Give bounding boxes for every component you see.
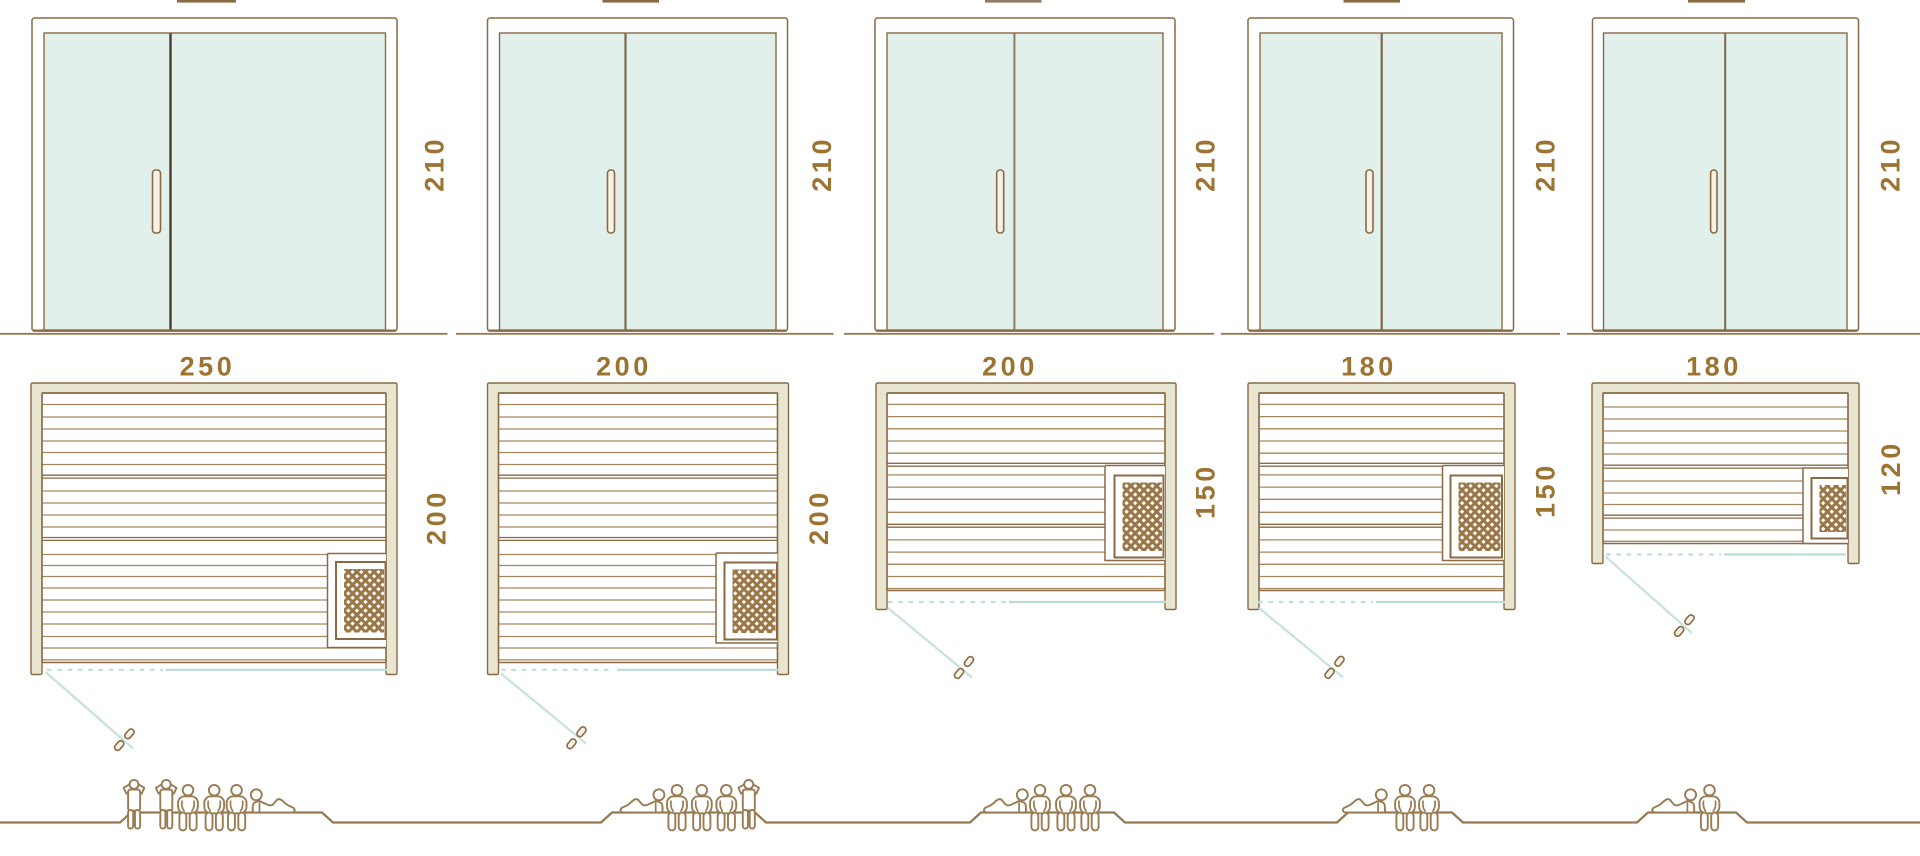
svg-text:250: 250 — [180, 352, 236, 382]
svg-text:200: 200 — [982, 352, 1038, 382]
svg-text:210: 210 — [807, 136, 837, 192]
svg-text:180: 180 — [1686, 352, 1742, 382]
svg-text:120: 120 — [1876, 440, 1906, 496]
svg-text:210: 210 — [420, 136, 450, 192]
svg-text:210: 210 — [1530, 136, 1560, 192]
svg-text:200: 200 — [596, 352, 652, 382]
svg-text:180: 180 — [1341, 352, 1397, 382]
svg-text:150: 150 — [1190, 463, 1220, 519]
svg-text:210: 210 — [1875, 136, 1905, 192]
svg-text:200: 200 — [804, 489, 834, 545]
svg-text:150: 150 — [1530, 462, 1560, 518]
svg-text:210: 210 — [1190, 136, 1220, 192]
svg-text:200: 200 — [421, 489, 451, 545]
